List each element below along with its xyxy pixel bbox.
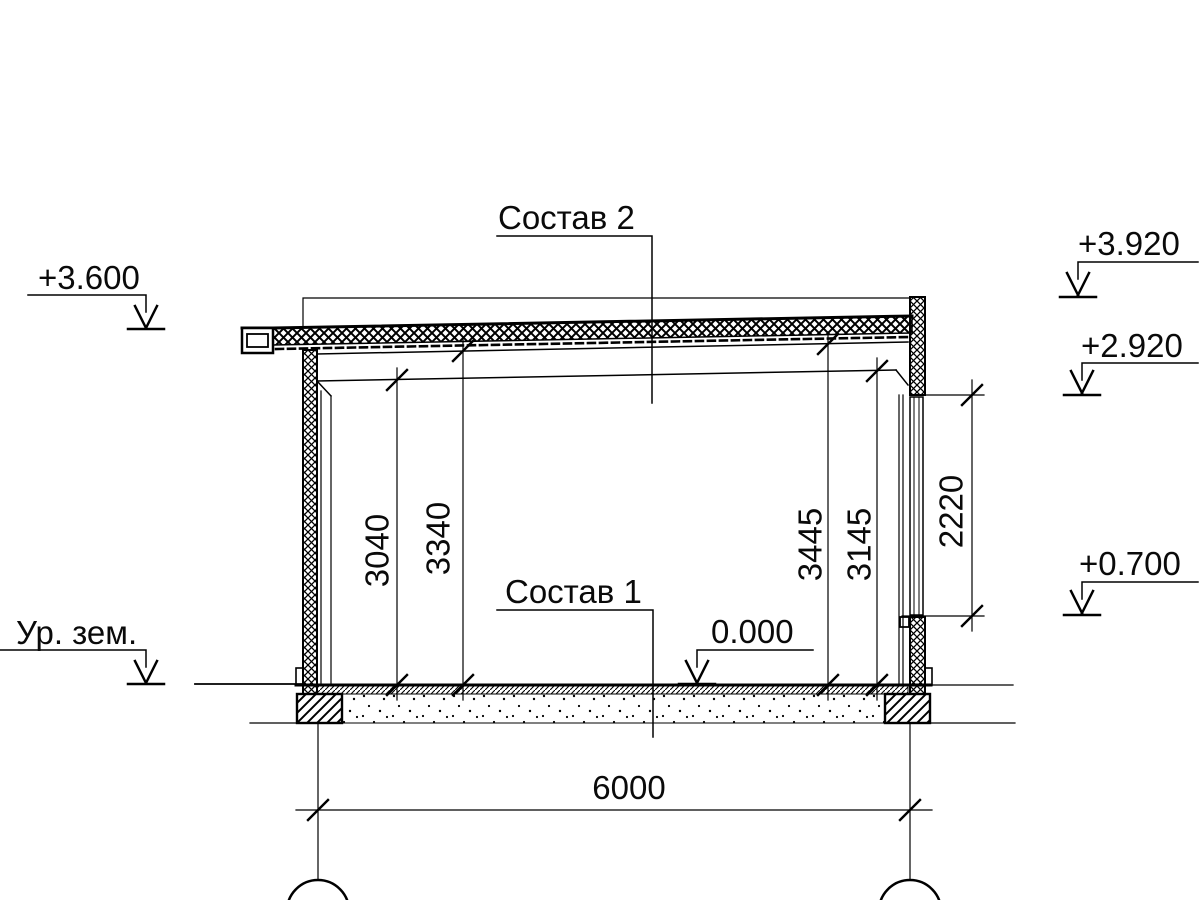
axis-bubble-right (879, 880, 941, 900)
left-column-lines (321, 391, 331, 685)
window-frame (910, 397, 923, 615)
elevation-wall-top-right: +3.920 (1078, 227, 1180, 260)
label-composition-roof: Состав 2 (498, 201, 635, 234)
dimension-lines (296, 332, 984, 810)
label-ground-level: Ур. зем. (16, 616, 137, 649)
eave-fascia-inner (247, 334, 268, 347)
section-linework (0, 0, 1200, 900)
axis-bubbles (287, 880, 941, 900)
elevation-floor: 0.000 (711, 615, 794, 648)
marker-2920 (1082, 363, 1198, 380)
ceiling-chamfer-left (317, 381, 331, 396)
right-wall-below-window (910, 617, 925, 694)
dim-text-3145: 3145 (843, 475, 876, 615)
dim-text-3040: 3040 (361, 481, 394, 621)
right-wall (899, 297, 932, 694)
dim-text-6000: 6000 (569, 771, 689, 804)
roof-insulation-band (273, 316, 912, 345)
dim-text-3445: 3445 (794, 475, 827, 615)
leader-sostav2 (497, 236, 652, 403)
left-plinth (296, 668, 303, 685)
marker-ur-zem (0, 650, 146, 667)
marker-3600 (28, 295, 146, 312)
window-glazing-lines (914, 397, 919, 615)
dim-text-3340: 3340 (422, 469, 455, 609)
foundation-left (297, 694, 342, 723)
right-reveal-lines (899, 395, 903, 685)
label-composition-floor: Состав 1 (505, 575, 642, 608)
elevation-window-sill: +0.700 (1079, 547, 1181, 580)
marker-3920 (1078, 262, 1198, 279)
composition-leaders (497, 236, 653, 737)
floor-concrete-base (342, 694, 885, 723)
right-plinth (925, 668, 932, 685)
dim-text-2220: 2220 (935, 442, 968, 582)
section-drawing-page: Состав 2 Состав 1 Ур. зем. +3.600 +3.920… (0, 0, 1200, 900)
dimension-ticks (308, 334, 982, 820)
elevation-window-head: +2.920 (1081, 329, 1183, 362)
elevation-eave-left: +3.600 (38, 261, 140, 294)
left-wall (296, 350, 331, 694)
ceiling-chamfer-right (896, 370, 908, 385)
window-sill-board (900, 617, 909, 627)
marker-0000 (697, 650, 813, 667)
marker-0700 (1082, 582, 1198, 599)
axis-bubble-left (287, 880, 349, 900)
right-wall-above-window (910, 297, 925, 395)
roof-assembly (242, 316, 912, 396)
foundation-right (885, 694, 930, 723)
